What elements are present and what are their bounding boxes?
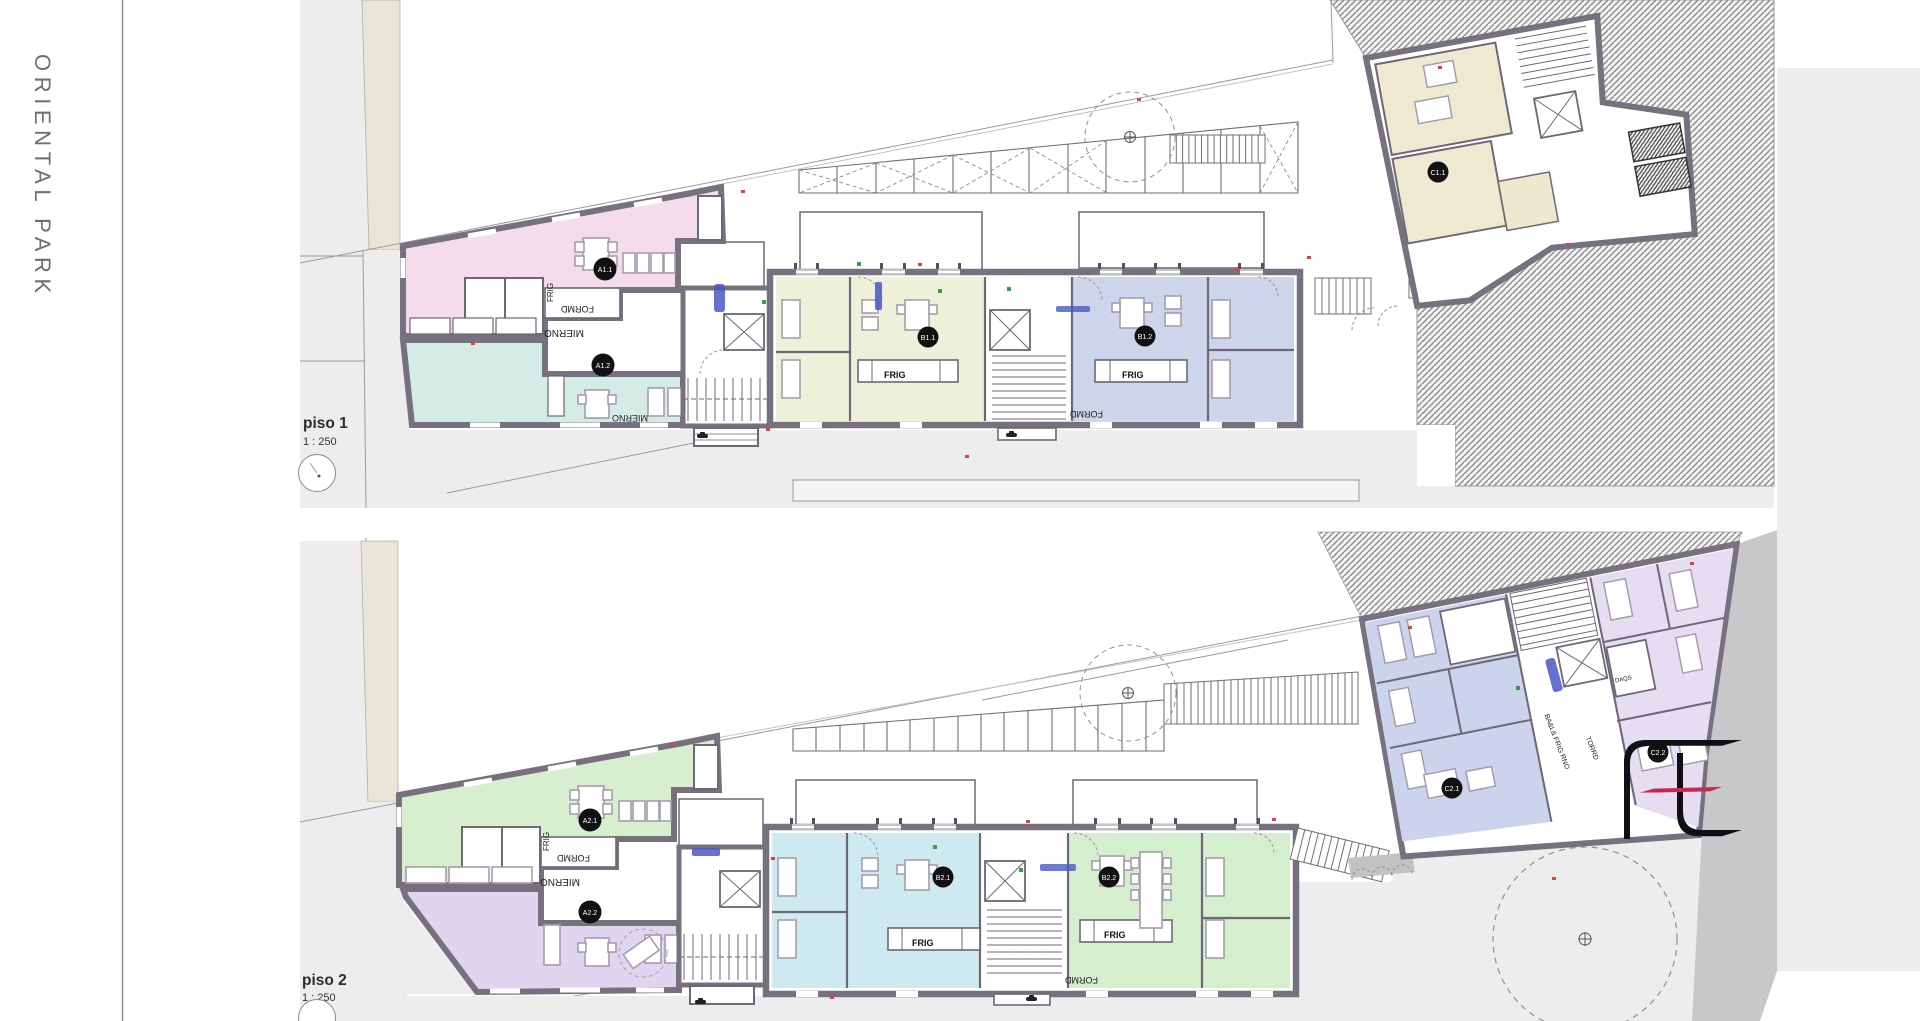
svg-text:A1.1: A1.1 [598,267,613,274]
svg-text:MIERNO: MIERNO [544,327,584,338]
svg-text:FRIG: FRIG [1104,930,1126,940]
svg-text:FRIG: FRIG [912,938,934,948]
svg-text:C1.1: C1.1 [1431,170,1446,177]
svg-text:FORMD: FORMD [1070,409,1103,419]
svg-text:MIERNO: MIERNO [612,413,648,423]
svg-text:FRIG: FRIG [542,832,551,851]
svg-text:1 : 250: 1 : 250 [303,436,337,448]
svg-text:ORIENTAL PARK: ORIENTAL PARK [30,54,55,299]
svg-text:FRIG: FRIG [1122,370,1144,380]
svg-text:FORMD: FORMD [561,304,594,314]
svg-text:FORMD: FORMD [1065,975,1098,985]
svg-text:B2.1: B2.1 [936,875,951,882]
svg-text:piso 1: piso 1 [303,415,348,432]
svg-text:A1.2: A1.2 [596,363,611,370]
svg-text:FRIG: FRIG [884,370,906,380]
svg-text:piso 2: piso 2 [302,972,347,989]
svg-text:FRIG: FRIG [546,283,555,302]
svg-text:A2.1: A2.1 [583,818,598,825]
svg-text:A2.2: A2.2 [583,910,598,917]
svg-text:C2.1: C2.1 [1445,786,1460,793]
svg-text:MIERNO: MIERNO [540,876,580,887]
svg-text:B2.2: B2.2 [1102,875,1117,882]
svg-text:C2.2: C2.2 [1651,750,1666,757]
svg-text:B1.1: B1.1 [921,335,936,342]
svg-text:FORMD: FORMD [557,853,590,863]
svg-text:B1.2: B1.2 [1138,334,1153,341]
